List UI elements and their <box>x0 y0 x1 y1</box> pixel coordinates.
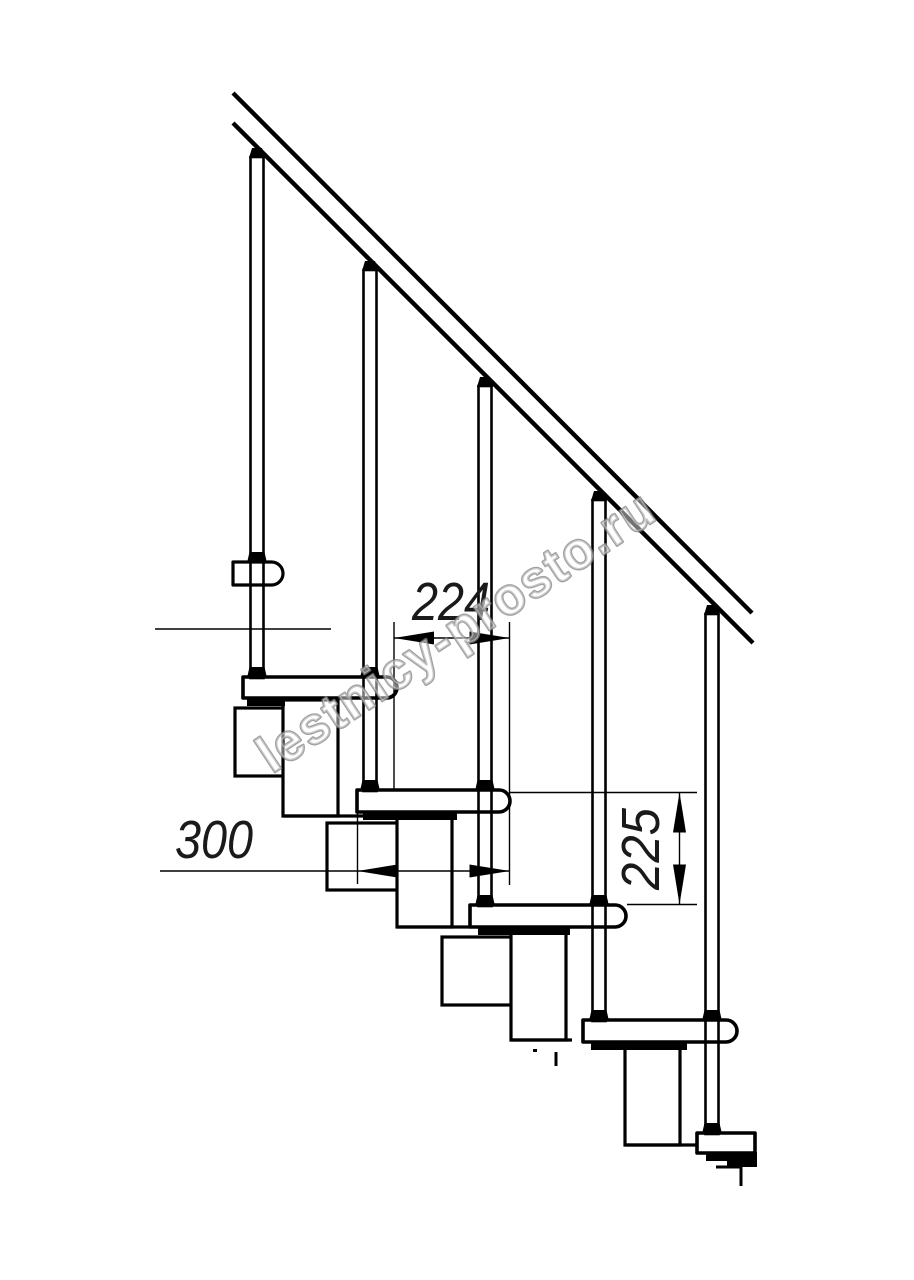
baluster-collar <box>589 895 609 906</box>
perpendicular-handrail-end <box>233 562 283 585</box>
module-box <box>442 937 518 1005</box>
tread <box>697 1133 755 1153</box>
dimension-arrowhead <box>673 865 686 905</box>
tread-underside-bracket <box>591 1041 687 1050</box>
tread <box>470 905 626 927</box>
module-column <box>397 813 452 927</box>
dimension-arrowhead <box>470 865 510 878</box>
baluster-collar <box>475 780 495 791</box>
dimension-label: 300 <box>175 810 253 870</box>
module-column <box>511 928 566 1040</box>
baluster-shaft <box>706 614 719 1134</box>
handrail-layer <box>233 93 753 643</box>
watermark-layer: lestnicy-prosto.ru <box>247 479 667 784</box>
baluster-collar <box>360 780 380 791</box>
baluster-shaft <box>251 157 264 678</box>
ink-speck <box>533 1049 537 1052</box>
dimension-riser-height: 225 <box>510 793 697 905</box>
tread <box>357 790 510 812</box>
baluster-collar <box>247 667 267 678</box>
baluster-collar <box>702 1010 722 1021</box>
staircase-side-view-drawing: 224300225lestnicy-prosto.ru <box>0 0 914 1280</box>
tread-underside-bracket <box>247 697 285 706</box>
dimension-label: 225 <box>611 807 671 891</box>
dimension-arrowhead <box>673 793 686 833</box>
baluster-collar <box>702 1123 722 1134</box>
module-box <box>327 823 403 890</box>
lower-module-hook-line <box>716 1167 741 1186</box>
module-column <box>625 1043 680 1145</box>
baluster-collar <box>247 552 267 563</box>
tread-underside-bracket <box>727 1152 757 1167</box>
drawing-page: 224300225lestnicy-prosto.ru <box>0 0 914 1280</box>
baluster-collar <box>589 1010 609 1021</box>
baluster-shaft <box>593 500 606 1021</box>
tread <box>583 1020 737 1042</box>
handrail-lower-edge <box>233 123 753 643</box>
baluster-collar <box>475 895 495 906</box>
tread-underside-bracket <box>478 926 570 935</box>
tread-underside-bracket <box>363 811 457 820</box>
watermark: lestnicy-prosto.ru <box>247 479 667 784</box>
